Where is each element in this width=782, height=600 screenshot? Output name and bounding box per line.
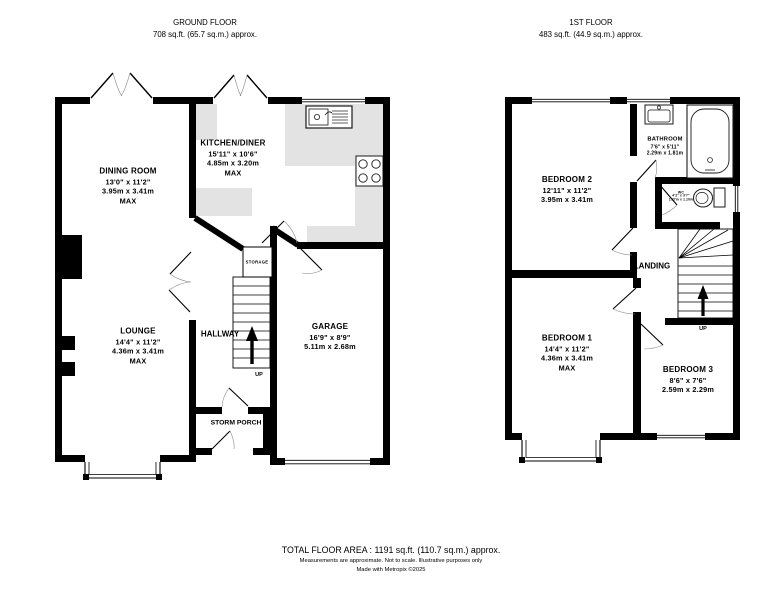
room-dim-imperial: 13'0" x 11'2" [99,177,156,187]
stairs-up-label-first: UP [699,326,707,332]
room-label-storm-porch: STORM PORCH [211,420,262,427]
ground-floor-title: GROUND FLOOR [153,17,257,29]
ground-floor-area: 708 sq.ft. (65.7 sq.m.) approx. [153,29,257,41]
room-name: BATHROOM [647,137,684,145]
room-dim-imperial: 8'6" x 7'6" [662,376,714,386]
room-dim-metric: 2.59m x 2.29m [662,385,714,395]
disclaimer-text: Measurements are approximate. Not to sca… [282,557,501,566]
room-label-kitchen-diner: KITCHEN/DINER 15'11" x 10'6" 4.85m x 3.2… [200,138,265,177]
bay-window-lounge [83,462,162,480]
room-dim-metric: 4.36m x 3.41m [112,346,164,356]
room-dim-imperial: 14'4" x 11'2" [112,337,164,347]
bathroom-sink-icon [645,105,673,124]
kitchen-sink-icon [306,106,352,128]
total-floor-area: TOTAL FLOOR AREA : 1191 sq.ft. (110.7 sq… [282,545,501,555]
room-dim-metric: 3.95m x 3.41m [99,186,156,196]
plan-footer: TOTAL FLOOR AREA : 1191 sq.ft. (110.7 sq… [282,545,501,575]
room-name: KITCHEN/DINER [200,138,265,149]
room-name: DINING ROOM [99,166,156,177]
toilet-icon [694,188,726,207]
room-label-bedroom-2: BEDROOM 2 12'11" x 11'2" 3.95m x 3.41m [541,175,593,205]
first-floor-area: 483 sq.ft. (44.9 sq.m.) approx. [539,29,643,41]
room-dim-metric: 4.85m x 3.20m [200,158,265,168]
credit-text: Made with Metropix ©2025 [282,566,501,575]
room-label-lounge: LOUNGE 14'4" x 11'2" 4.36m x 3.41m MAX [112,326,164,365]
room-label-bedroom-3: BEDROOM 3 8'6" x 7'6" 2.59m x 2.29m [662,365,714,395]
room-dim-qualifier: MAX [112,356,164,366]
floorplan-drawing [0,0,782,600]
ground-floor-header: GROUND FLOOR 708 sq.ft. (65.7 sq.m.) app… [153,17,257,40]
room-dim-qualifier: MAX [99,196,156,206]
first-floor-header: 1ST FLOOR 483 sq.ft. (44.9 sq.m.) approx… [539,17,643,40]
first-floor-plan [505,97,740,463]
bathtub-icon [687,105,733,178]
room-dim-metric: 4.36m x 3.41m [541,353,593,363]
stairs-up-label-ground: UP [255,372,263,378]
room-name: GARAGE [304,322,356,333]
stove-icon [356,156,383,186]
room-dim-metric: 1.27m x 1.10m [669,198,693,202]
room-label-landing: LANDING [634,262,670,271]
room-dim-imperial: 15'11" x 10'6" [200,149,265,159]
room-dim-imperial: 14'4" x 11'2" [541,344,593,354]
room-name: LOUNGE [112,326,164,337]
room-dim-metric: 2.29m x 1.81m [647,151,684,158]
room-dim-metric: 3.95m x 3.41m [541,195,593,205]
room-dim-qualifier: MAX [200,168,265,178]
room-name: BEDROOM 1 [541,333,593,344]
floorplan-page: GROUND FLOOR 708 sq.ft. (65.7 sq.m.) app… [0,0,782,600]
room-name: BEDROOM 3 [662,365,714,376]
first-stairs [678,229,733,318]
bay-window-bedroom1 [519,440,602,463]
room-dim-metric: 5.11m x 2.68m [304,342,356,352]
room-label-bathroom: BATHROOM 7'6" x 5'11" 2.29m x 1.81m [647,137,684,158]
room-label-hallway: HALLWAY [201,330,239,339]
room-dim-imperial: 16'9" x 8'9" [304,333,356,343]
room-label-wc: WC 4'2" x 3'7" 1.27m x 1.10m [669,190,693,201]
room-dim-imperial: 12'11" x 11'2" [541,186,593,196]
room-label-garage: GARAGE 16'9" x 8'9" 5.11m x 2.68m [304,322,356,352]
room-label-bedroom-1: BEDROOM 1 14'4" x 11'2" 4.36m x 3.41m MA… [541,333,593,372]
first-floor-title: 1ST FLOOR [539,17,643,29]
room-label-storage: STORAGE [246,260,269,265]
room-label-dining-room: DINING ROOM 13'0" x 11'2" 3.95m x 3.41m … [99,166,156,205]
ground-stairs [233,277,270,368]
room-dim-qualifier: MAX [541,363,593,373]
room-name: BEDROOM 2 [541,175,593,186]
